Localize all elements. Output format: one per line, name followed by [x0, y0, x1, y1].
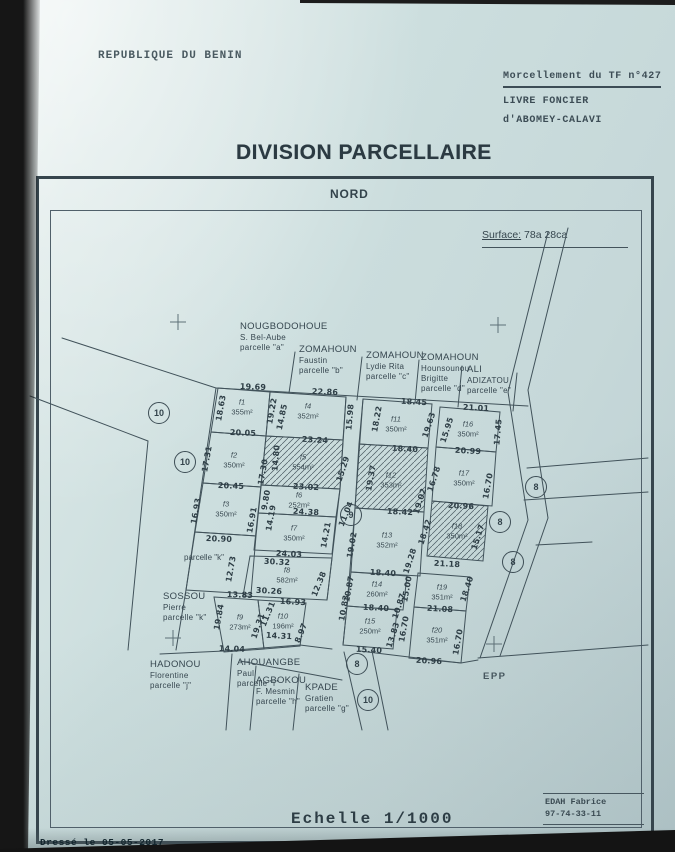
epp-label: EPP — [483, 671, 507, 682]
owner-label: KPADEGratienparcelle "g" — [305, 682, 349, 714]
scale-label: Echelle 1/1000 — [291, 810, 453, 828]
edge-measurement: 14.31 — [266, 631, 293, 641]
parcel-label: f3350m² — [215, 499, 236, 519]
parcel-label: f13352m² — [376, 530, 397, 550]
owner-label: ZOMAHOUNFaustinparcelle "b" — [299, 344, 357, 376]
drawn-date-note: Dressé le 05-05-2017 — [40, 837, 164, 848]
edge-measurement: 20.05 — [230, 428, 257, 438]
edge-measurement: 13.83 — [227, 590, 254, 600]
parcel-label: f10196m² — [272, 611, 293, 631]
surveyor-name: EDAH Fabrice — [545, 797, 644, 809]
edge-measurement: 17.30 — [256, 458, 269, 485]
scanned-cadastral-document: REPUBLIQUE DU BENIN Morcellement du TF n… — [0, 0, 675, 852]
edge-measurement: 18.40 — [459, 575, 476, 603]
surveyor-box: EDAH Fabrice 97-74-33-11 — [543, 793, 644, 825]
parcel-label: f11350m² — [385, 414, 406, 434]
edge-measurement: 16.78 — [426, 465, 443, 493]
edge-measurement: 20.45 — [218, 481, 245, 491]
parcel-label: f19351m² — [431, 582, 452, 602]
parcel-label: f14260m² — [366, 579, 387, 599]
edge-measurement: 8.97 — [293, 622, 309, 644]
road-node: 10 — [174, 451, 196, 473]
edge-measurement: 14.80 — [270, 445, 281, 472]
edge-measurement: 20.90 — [206, 534, 233, 544]
road-node: 10 — [148, 402, 170, 424]
edge-measurement: 17.31 — [200, 445, 213, 472]
road-node: 8 — [525, 476, 547, 498]
edge-measurement: 19.63 — [421, 411, 438, 439]
parcel-label: f18350m² — [446, 521, 467, 541]
edge-measurement: 14.04 — [219, 644, 246, 654]
edge-measurement: 18.63 — [214, 394, 227, 421]
edge-measurement: 18.45 — [401, 397, 428, 407]
edge-measurement: 20.96 — [416, 656, 443, 666]
edge-measurement: 21.18 — [434, 559, 461, 569]
edge-measurement: 16.70 — [451, 628, 464, 655]
edge-measurement: 18.42 — [387, 507, 414, 517]
edge-measurement: 18.40 — [363, 603, 390, 613]
road-node: 8 — [489, 511, 511, 533]
edge-measurement: 15.95 — [439, 416, 456, 444]
parcel-label: f4352m² — [297, 401, 318, 421]
edge-measurement: 18.22 — [370, 405, 383, 432]
edge-measurement: 17.45 — [492, 419, 503, 446]
owner-label: HADONOUFlorentineparcelle "j" — [150, 659, 201, 691]
edge-measurement: 22.86 — [312, 387, 339, 397]
edge-measurement: 19.84 — [212, 603, 225, 630]
surveyor-phone: 97-74-33-11 — [545, 809, 644, 821]
edge-measurement: 16.91 — [245, 506, 258, 533]
edge-measurement: 16.93 — [189, 497, 202, 524]
road-node: 10 — [357, 689, 379, 711]
owner-label: ZOMAHOUNLydie Ritaparcelle "c" — [366, 350, 424, 382]
parcel-label: f6252m² — [288, 490, 309, 510]
parcelle-k-note: parcelle "k" — [184, 553, 224, 562]
edge-measurement: 14.21 — [319, 521, 332, 548]
owner-label: ALIADIZATOUparcelle "e" — [467, 364, 511, 396]
road-node: 8 — [346, 653, 368, 675]
edge-measurement: 21.08 — [427, 604, 454, 614]
edge-measurement: 18.42 — [417, 518, 434, 546]
road-node: 8 — [502, 551, 524, 573]
edge-measurement: 10.83 — [337, 594, 350, 621]
parcel-label: f9273m² — [229, 612, 250, 632]
edge-measurement: 16.93 — [280, 597, 307, 607]
edge-measurement: 19.02 — [345, 531, 358, 558]
map-labels-layer: 19.6922.8618.4521.0120.0523.2418.4020.99… — [0, 0, 675, 852]
road-node: 9 — [340, 504, 362, 526]
edge-measurement: 12.38 — [310, 570, 328, 598]
parcel-label: f1355m² — [231, 397, 252, 417]
parcel-label: f15250m² — [359, 616, 380, 636]
edge-measurement: 15.98 — [344, 404, 355, 431]
edge-measurement: 18.40 — [392, 444, 419, 454]
edge-measurement: 19.69 — [240, 382, 267, 392]
parcel-label: f16350m² — [457, 419, 478, 439]
parcel-label: f20351m² — [426, 625, 447, 645]
edge-measurement: 19.28 — [402, 547, 419, 575]
edge-measurement: 12.73 — [224, 555, 237, 582]
parcel-label: f17350m² — [453, 468, 474, 488]
edge-measurement: 16.70 — [481, 472, 494, 499]
edge-measurement: 30.26 — [256, 586, 283, 596]
owner-label: SOSSOUPierreparcelle "k" — [163, 591, 207, 623]
parcel-label: f12353m² — [380, 470, 401, 490]
edge-measurement: 19.37 — [364, 464, 377, 491]
edge-measurement: 20.99 — [455, 446, 482, 456]
edge-measurement: 20.96 — [448, 501, 475, 511]
edge-measurement: 18.40 — [370, 568, 397, 578]
edge-measurement: 23.24 — [302, 435, 329, 445]
parcel-label: f7350m² — [283, 523, 304, 543]
edge-measurement: 19.02 — [412, 487, 429, 515]
owner-label: AGBOKOUF. Mesminparcelle "h" — [256, 675, 306, 707]
parcel-label: f5554m² — [292, 452, 313, 472]
parcel-label: f2350m² — [223, 450, 244, 470]
edge-measurement: 15.17 — [470, 523, 487, 551]
edge-measurement: 21.01 — [463, 403, 490, 413]
edge-measurement: 15.29 — [335, 455, 352, 483]
parcel-label: f8582m² — [276, 565, 297, 585]
